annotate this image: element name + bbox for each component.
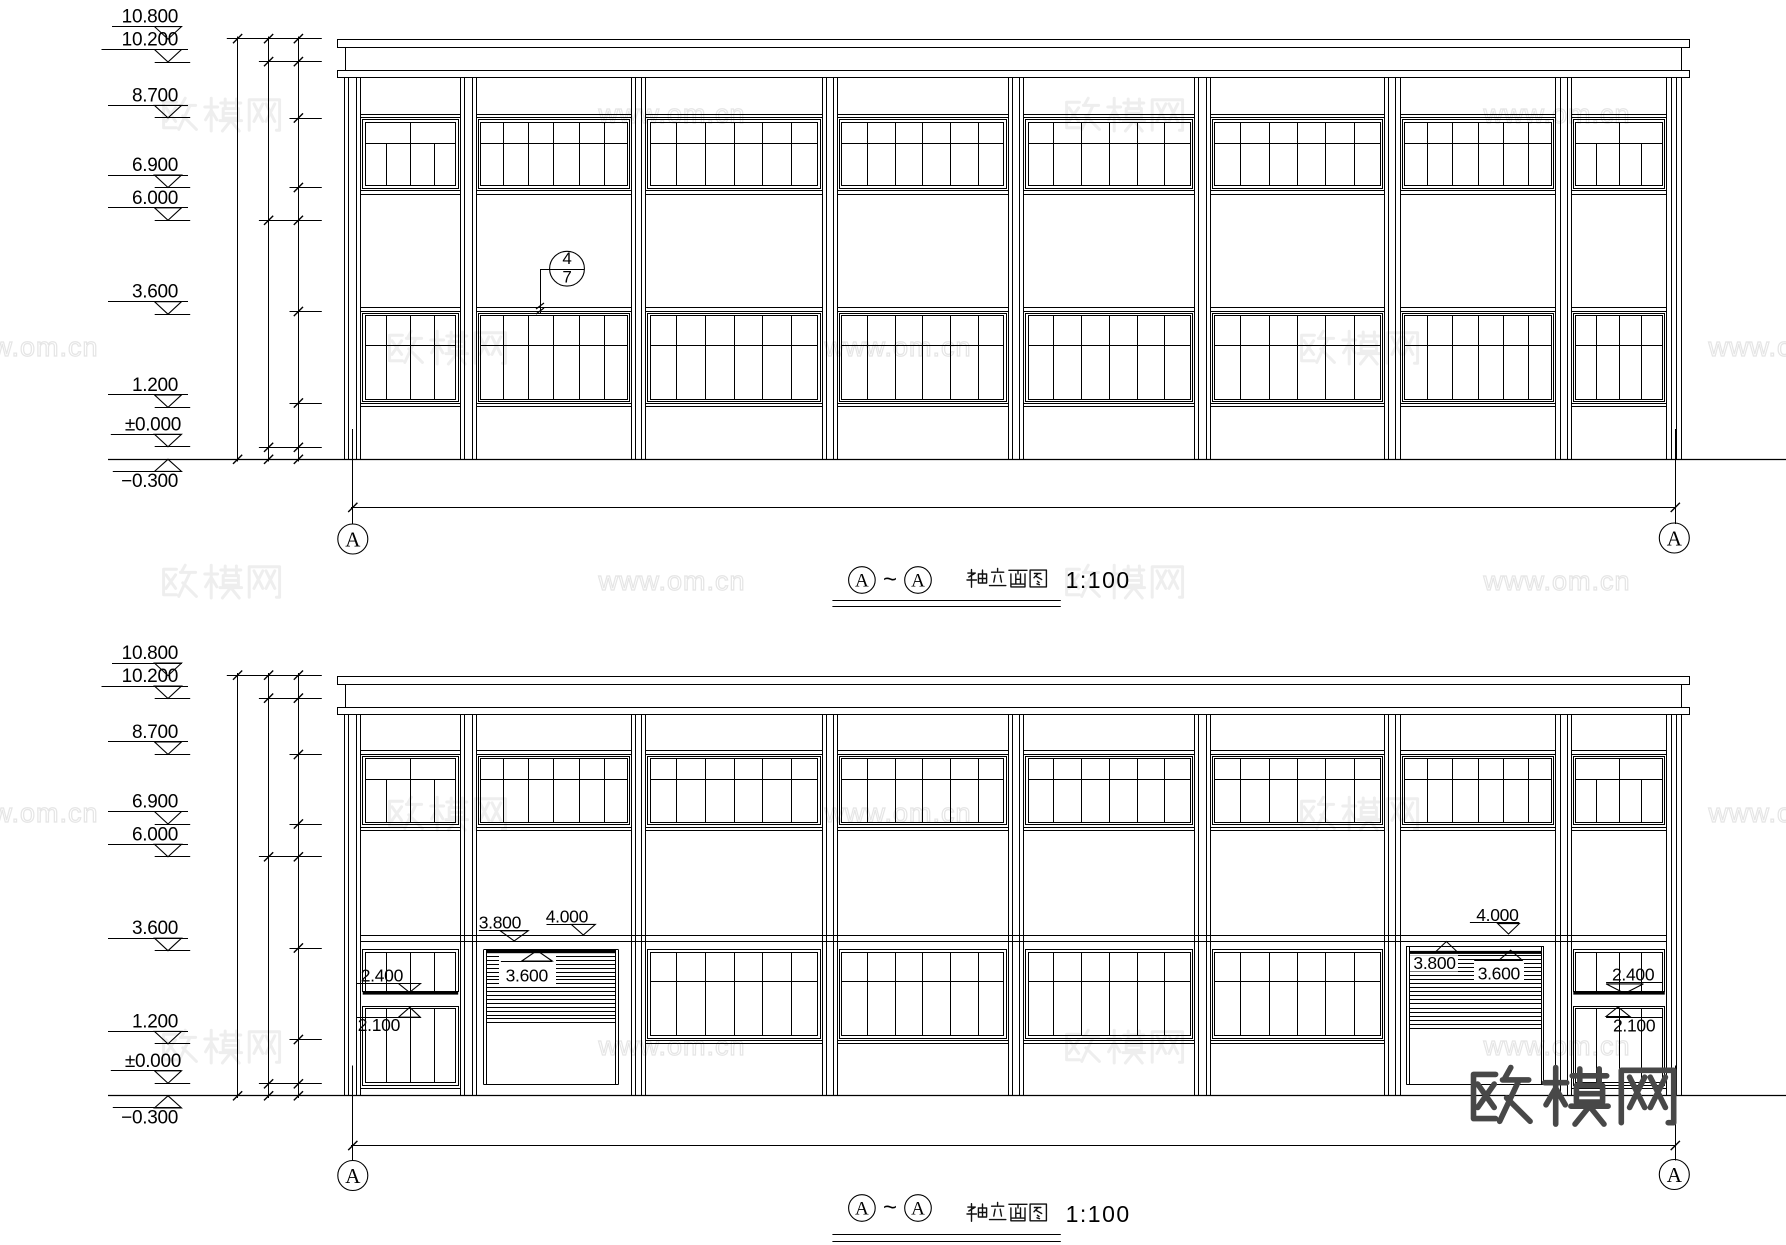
svg-text:2.100: 2.100	[358, 1015, 401, 1035]
svg-text:10.800: 10.800	[122, 643, 178, 664]
svg-text:A: A	[1667, 527, 1683, 551]
svg-text:6.000: 6.000	[132, 188, 178, 209]
svg-text:4.000: 4.000	[546, 907, 589, 927]
svg-text:2.400: 2.400	[361, 966, 404, 986]
svg-text:2.400: 2.400	[1612, 965, 1655, 985]
svg-text:www.om.cn: www.om.cn	[1707, 798, 1786, 828]
svg-text:www.om.cn: www.om.cn	[1482, 1031, 1630, 1061]
svg-text:3.800: 3.800	[479, 913, 522, 933]
svg-text:3.800: 3.800	[1413, 953, 1456, 973]
svg-text:4: 4	[562, 249, 571, 268]
svg-text:7: 7	[562, 268, 571, 287]
svg-text:1:100: 1:100	[1066, 1201, 1131, 1227]
svg-text:1:100: 1:100	[1066, 567, 1131, 593]
svg-text:www.om.cn: www.om.cn	[0, 798, 99, 828]
svg-text:www.om.cn: www.om.cn	[1707, 332, 1786, 362]
svg-text:1.200: 1.200	[132, 1011, 178, 1032]
svg-text:6.900: 6.900	[132, 792, 178, 813]
svg-text:A: A	[911, 1199, 925, 1220]
svg-text:8.700: 8.700	[132, 85, 178, 106]
svg-text:3.600: 3.600	[506, 966, 549, 986]
svg-text:A: A	[855, 571, 869, 592]
svg-text:±0.000: ±0.000	[125, 1051, 181, 1072]
svg-text:A: A	[1667, 1163, 1683, 1187]
svg-text:~: ~	[883, 1194, 897, 1221]
svg-text:A: A	[911, 571, 925, 592]
svg-text:www.om.cn: www.om.cn	[823, 332, 971, 362]
svg-text:3.600: 3.600	[132, 282, 178, 303]
svg-text:6.000: 6.000	[132, 824, 178, 845]
svg-text:10.800: 10.800	[122, 7, 178, 28]
svg-text:www.om.cn: www.om.cn	[597, 566, 745, 596]
svg-text:10.200: 10.200	[122, 30, 178, 51]
svg-text:6.900: 6.900	[132, 155, 178, 176]
svg-text:www.om.cn: www.om.cn	[0, 332, 99, 362]
svg-text:−0.300: −0.300	[121, 1108, 178, 1129]
svg-text:~: ~	[883, 566, 897, 593]
svg-text:10.200: 10.200	[122, 666, 178, 687]
svg-text:www.om.cn: www.om.cn	[1482, 566, 1630, 596]
svg-text:A: A	[345, 528, 361, 552]
svg-text:A: A	[855, 1199, 869, 1220]
svg-text:3.600: 3.600	[132, 918, 178, 939]
svg-text:A: A	[345, 1164, 361, 1188]
svg-text:3.600: 3.600	[1478, 964, 1521, 984]
svg-text:1.200: 1.200	[132, 375, 178, 396]
svg-text:8.700: 8.700	[132, 722, 178, 743]
svg-text:www.om.cn: www.om.cn	[823, 798, 971, 828]
svg-text:−0.300: −0.300	[121, 471, 178, 492]
svg-text:2.100: 2.100	[1613, 1016, 1656, 1036]
svg-text:±0.000: ±0.000	[125, 414, 181, 435]
